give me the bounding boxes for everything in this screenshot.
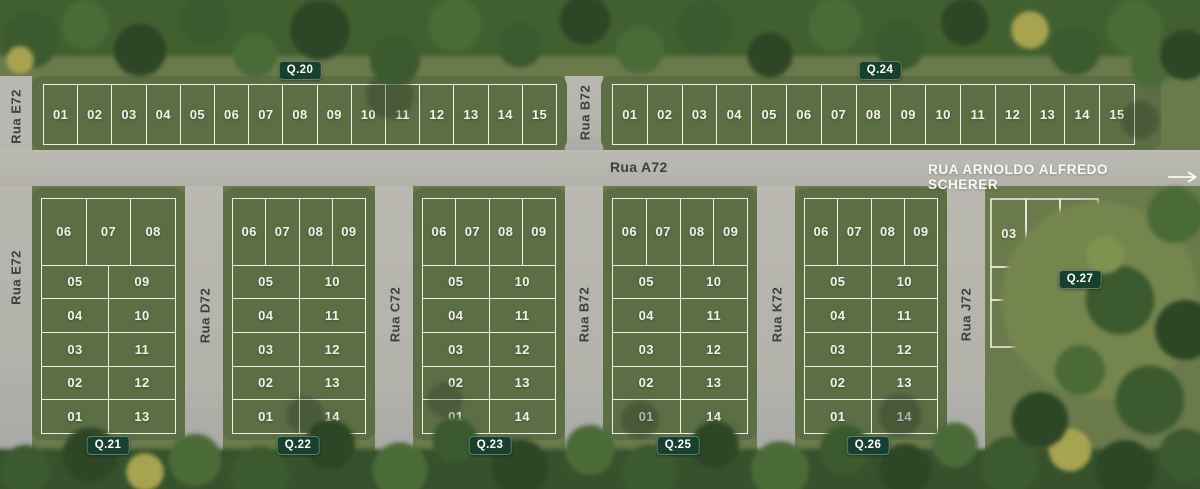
lot-number: 02	[830, 375, 845, 390]
lot[interactable]: 13	[109, 400, 175, 433]
lot-number: 05	[830, 274, 845, 289]
lot[interactable]: 12	[420, 85, 454, 144]
lot-number: 06	[431, 224, 446, 239]
block-badge-q24: Q.24	[859, 61, 902, 80]
lot[interactable]: 06	[787, 85, 822, 144]
lot-number: 03	[692, 107, 707, 122]
lot[interactable]: 03	[991, 199, 1027, 267]
lot-number: 04	[258, 308, 273, 323]
lot[interactable]: 11	[300, 299, 366, 333]
lot[interactable]: 08	[300, 199, 333, 265]
lot[interactable]: 15	[1100, 85, 1134, 144]
lot[interactable]: 03	[683, 85, 718, 144]
lot-number: 11	[395, 107, 410, 122]
lot[interactable]: 05	[613, 266, 680, 300]
lot-number: 14	[1075, 107, 1090, 122]
lot[interactable]: 06	[805, 199, 838, 265]
lot[interactable]: 10	[926, 85, 961, 144]
lot[interactable]: 12	[872, 333, 938, 367]
lot[interactable]: 05	[42, 266, 108, 300]
lot[interactable]: 04	[717, 85, 752, 144]
block-badge-q27: Q.27	[1059, 270, 1102, 289]
lot[interactable]: 11	[109, 333, 175, 367]
lot[interactable]: 12	[300, 333, 366, 367]
lot[interactable]: 09	[905, 199, 937, 265]
lot[interactable]: 13	[490, 367, 556, 401]
street-label-e72-bottom: Rua E72	[9, 238, 24, 318]
lot-number: 12	[1005, 107, 1020, 122]
lot-number: 09	[913, 224, 928, 239]
lot[interactable]: 08	[681, 199, 715, 265]
lot[interactable]: 07	[822, 85, 857, 144]
lot-number: 14	[897, 409, 912, 424]
lot-number: 06	[241, 224, 256, 239]
lot-number: 14	[706, 409, 721, 424]
lot-number: 02	[657, 107, 672, 122]
lot-number: 07	[847, 224, 862, 239]
lot[interactable]: 13	[1031, 85, 1066, 144]
lot[interactable]: 01	[613, 85, 648, 144]
lot[interactable]: 06	[613, 199, 647, 265]
lot-number: 13	[463, 107, 478, 122]
lot[interactable]: 14	[490, 400, 556, 433]
lot-number: 01	[53, 107, 68, 122]
lot-number: 04	[67, 308, 82, 323]
q20-lots: 010203040506070809101112131415	[43, 84, 557, 145]
lot-number: 11	[971, 107, 986, 122]
lot[interactable]: 11	[681, 299, 748, 333]
lot[interactable]: 04	[613, 299, 680, 333]
block-badge-q26: Q.26	[847, 436, 890, 455]
lot-number: 04	[830, 308, 845, 323]
lot-number: 06	[224, 107, 239, 122]
lot-number: 01	[258, 409, 273, 424]
lot-number: 07	[275, 224, 290, 239]
lot[interactable]: 12	[996, 85, 1031, 144]
lot-number: 01	[622, 107, 637, 122]
lot[interactable]: 07	[266, 199, 299, 265]
block-q25: 06070809 0504030201 1011121314	[603, 188, 757, 440]
lot[interactable]: 12	[490, 333, 556, 367]
lot-number: 01	[67, 409, 82, 424]
lot[interactable]: 04	[233, 299, 299, 333]
lot-number: 03	[639, 342, 654, 357]
lot[interactable]: 04	[42, 299, 108, 333]
lot[interactable]: 01	[423, 400, 489, 433]
lot-number: 02	[258, 375, 273, 390]
lot[interactable]: 05	[181, 85, 215, 144]
lot[interactable]: 04	[805, 299, 871, 333]
block-q26: 06070809 0504030201 1011121314	[795, 188, 947, 440]
lot-number: 14	[498, 107, 513, 122]
avenue-label: RUA ARNOLDO ALFREDO SCHERER	[928, 162, 1200, 192]
lot[interactable]: 10	[352, 85, 386, 144]
lot[interactable]: 11	[961, 85, 996, 144]
lot-number: 09	[531, 224, 546, 239]
lot[interactable]: 02	[233, 367, 299, 401]
q24-lots: 010203040506070809101112131415	[612, 84, 1135, 145]
street-label-c72: Rua C72	[388, 275, 403, 355]
lot-number: 07	[465, 224, 480, 239]
lot[interactable]: 08	[872, 199, 905, 265]
lot-number: 05	[1073, 226, 1088, 241]
lot[interactable]: 03	[613, 333, 680, 367]
lot[interactable]: 03	[42, 333, 108, 367]
lot[interactable]: 07	[647, 199, 681, 265]
lot-number: 05	[761, 107, 776, 122]
lot-number: 08	[880, 224, 895, 239]
avenue-name: RUA ARNOLDO ALFREDO SCHERER	[928, 162, 1156, 192]
lot-number: 10	[134, 308, 149, 323]
lot-number: 11	[897, 308, 912, 323]
lot[interactable]: 10	[681, 266, 748, 300]
lot-number: 05	[190, 107, 205, 122]
lot[interactable]: 04	[423, 299, 489, 333]
lot-number: 13	[1040, 107, 1055, 122]
lot-number: 14	[325, 409, 340, 424]
block-badge-q25: Q.25	[657, 436, 700, 455]
lot-number: 09	[134, 274, 149, 289]
lot[interactable]: 08	[283, 85, 317, 144]
lot-number: 07	[258, 107, 273, 122]
lot-number: 12	[325, 342, 340, 357]
lot[interactable]: 08	[490, 199, 523, 265]
lot-number: 10	[515, 274, 530, 289]
lot[interactable]: 05	[233, 266, 299, 300]
block-q22: 06070809 0504030201 1011121314	[223, 188, 375, 440]
lot[interactable]: 02	[78, 85, 112, 144]
block-q20: 010203040506070809101112131415	[32, 76, 567, 150]
lot[interactable]: 03	[112, 85, 146, 144]
lot[interactable]: 11	[386, 85, 420, 144]
lot[interactable]: 06	[233, 199, 266, 265]
lot[interactable]: 04	[147, 85, 181, 144]
lot[interactable]: 11	[872, 299, 938, 333]
lot[interactable]: 09	[318, 85, 352, 144]
q21-lots: 060708 0504030201 0910111213	[41, 198, 176, 434]
lot-number: 11	[515, 308, 530, 323]
lot[interactable]: 02	[805, 367, 871, 401]
lot-number: 06	[813, 224, 828, 239]
lot-number: 05	[448, 274, 463, 289]
block-q27: 030405 02 01	[985, 192, 1200, 392]
lot-number: 04	[639, 308, 654, 323]
q23-lots: 06070809 0504030201 1011121314	[422, 198, 556, 434]
lot[interactable]: 01	[805, 400, 871, 433]
lot[interactable]: 03	[805, 333, 871, 367]
lot-number: 10	[325, 274, 340, 289]
lot[interactable]: 07	[456, 199, 489, 265]
lot-number: 10	[361, 107, 376, 122]
lot[interactable]: 03	[423, 333, 489, 367]
lot-number: 04	[1037, 226, 1052, 241]
lot-number: 15	[532, 107, 547, 122]
lot-number: 12	[706, 342, 721, 357]
street-label-b72-bottom: Rua B72	[577, 275, 592, 355]
lot[interactable]: 13	[872, 367, 938, 401]
lot[interactable]: 01	[44, 85, 78, 144]
lot-number: 15	[1109, 107, 1124, 122]
lot[interactable]: 02	[991, 267, 1060, 300]
lot-number: 09	[901, 107, 916, 122]
lot[interactable]: 02	[42, 367, 108, 401]
block-q23: 06070809 0504030201 1011121314	[413, 188, 565, 440]
lot[interactable]: 06	[215, 85, 249, 144]
lot[interactable]: 05	[423, 266, 489, 300]
lot-number: 09	[327, 107, 342, 122]
block-q21: 060708 0504030201 0910111213	[32, 188, 185, 440]
lot-number: 03	[121, 107, 136, 122]
lot-number: 01	[639, 409, 654, 424]
lot-number: 08	[689, 224, 704, 239]
street-label-k72: Rua K72	[770, 275, 785, 355]
lot-number: 13	[325, 375, 340, 390]
lot-number: 12	[515, 342, 530, 357]
lot-number: 08	[866, 107, 881, 122]
lot-number: 05	[67, 274, 82, 289]
lot-number: 10	[935, 107, 950, 122]
lot[interactable]: 13	[454, 85, 488, 144]
block-badge-q23: Q.23	[469, 436, 512, 455]
lot-number: 14	[515, 409, 530, 424]
lot-number: 03	[258, 342, 273, 357]
lot[interactable]: 03	[233, 333, 299, 367]
street-label-e72-top: Rua E72	[9, 77, 24, 157]
lot[interactable]: 14	[872, 400, 938, 433]
lot[interactable]: 14	[1065, 85, 1100, 144]
lot[interactable]: 11	[490, 299, 556, 333]
lot-number: 12	[134, 375, 149, 390]
q25-lots: 06070809 0504030201 1011121314	[612, 198, 748, 434]
lot[interactable]: 12	[109, 367, 175, 401]
street-label-b72-top: Rua B72	[578, 73, 593, 153]
lot[interactable]: 01	[42, 400, 108, 433]
lot-number: 08	[146, 224, 161, 239]
street-label-j72: Rua J72	[959, 275, 974, 355]
lot-number: 10	[706, 274, 721, 289]
lot-number: 11	[135, 342, 150, 357]
lot-number: 04	[448, 308, 463, 323]
lot[interactable]: 07	[838, 199, 871, 265]
lot[interactable]: 10	[872, 266, 938, 300]
lot-number: 05	[258, 274, 273, 289]
lot[interactable]: 02	[648, 85, 683, 144]
lot[interactable]: 14	[681, 400, 748, 433]
lot[interactable]: 07	[87, 199, 132, 265]
lot[interactable]: 09	[891, 85, 926, 144]
lot-number: 04	[156, 107, 171, 122]
street-label-d72: Rua D72	[198, 276, 213, 356]
lot[interactable]: 13	[681, 367, 748, 401]
lot-number: 11	[706, 308, 721, 323]
lot[interactable]: 09	[109, 266, 175, 300]
lot[interactable]: 05	[805, 266, 871, 300]
lot-number: 02	[87, 107, 102, 122]
block-badge-q20: Q.20	[279, 61, 322, 80]
lot[interactable]: 06	[42, 199, 87, 265]
lot[interactable]: 15	[523, 85, 556, 144]
q26-lots: 06070809 0504030201 1011121314	[804, 198, 938, 434]
lot-number: 10	[897, 274, 912, 289]
block-badge-q22: Q.22	[277, 436, 320, 455]
lot-number: 11	[325, 308, 340, 323]
lot-number: 01	[1014, 314, 1029, 329]
lot[interactable]: 06	[423, 199, 456, 265]
lot-number: 02	[448, 375, 463, 390]
lot-number: 05	[639, 274, 654, 289]
lot-number: 03	[1001, 226, 1016, 241]
lot-number: 03	[448, 342, 463, 357]
lot[interactable]: 02	[423, 367, 489, 401]
lot-number: 13	[515, 375, 530, 390]
lot[interactable]: 09	[714, 199, 747, 265]
lot[interactable]: 14	[300, 400, 366, 433]
lot[interactable]: 02	[613, 367, 680, 401]
lot-number: 06	[796, 107, 811, 122]
lot[interactable]: 04	[1027, 199, 1063, 267]
lot[interactable]: 08	[131, 199, 175, 265]
lot-number: 13	[897, 375, 912, 390]
block-badge-q21: Q.21	[87, 436, 130, 455]
lot-number: 08	[292, 107, 307, 122]
lot[interactable]: 10	[490, 266, 556, 300]
lot-number: 03	[67, 342, 82, 357]
lot[interactable]: 07	[249, 85, 283, 144]
lot[interactable]: 12	[681, 333, 748, 367]
lot-number: 09	[723, 224, 738, 239]
lot-number: 02	[67, 375, 82, 390]
lot[interactable]: 09	[333, 199, 365, 265]
lot[interactable]: 13	[300, 367, 366, 401]
street-label-a72: Rua A72	[610, 159, 668, 175]
lot-number: 12	[897, 342, 912, 357]
lot-number: 07	[101, 224, 116, 239]
lot[interactable]: 10	[300, 266, 366, 300]
lot[interactable]: 08	[857, 85, 892, 144]
lot-number: 09	[341, 224, 356, 239]
lot-number: 08	[498, 224, 513, 239]
lot-number: 08	[308, 224, 323, 239]
lot-number: 13	[706, 375, 721, 390]
site-plan: 010203040506070809101112131415 010203040…	[0, 0, 1200, 489]
lot[interactable]: 10	[109, 299, 175, 333]
block-q24: 010203040506070809101112131415	[601, 76, 1161, 150]
lot-number: 04	[727, 107, 742, 122]
lot-number: 07	[831, 107, 846, 122]
lot-number: 02	[1018, 276, 1033, 291]
lot-number: 12	[429, 107, 444, 122]
lot-number: 06	[56, 224, 71, 239]
lot[interactable]: 05	[1062, 199, 1098, 267]
lot-number: 03	[830, 342, 845, 357]
lot-number: 07	[655, 224, 670, 239]
lot-number: 01	[830, 409, 845, 424]
lot[interactable]: 01	[613, 400, 680, 433]
lot-number: 13	[134, 409, 149, 424]
lot-number: 01	[448, 409, 463, 424]
q22-lots: 06070809 0504030201 1011121314	[232, 198, 366, 434]
lot[interactable]: 05	[752, 85, 787, 144]
lot[interactable]: 01	[991, 300, 1053, 342]
lot[interactable]: 01	[233, 400, 299, 433]
direction-arrow-icon	[1168, 171, 1200, 183]
lot[interactable]: 14	[489, 85, 523, 144]
lot-number: 02	[639, 375, 654, 390]
lot-number: 06	[622, 224, 637, 239]
lot[interactable]: 09	[523, 199, 555, 265]
